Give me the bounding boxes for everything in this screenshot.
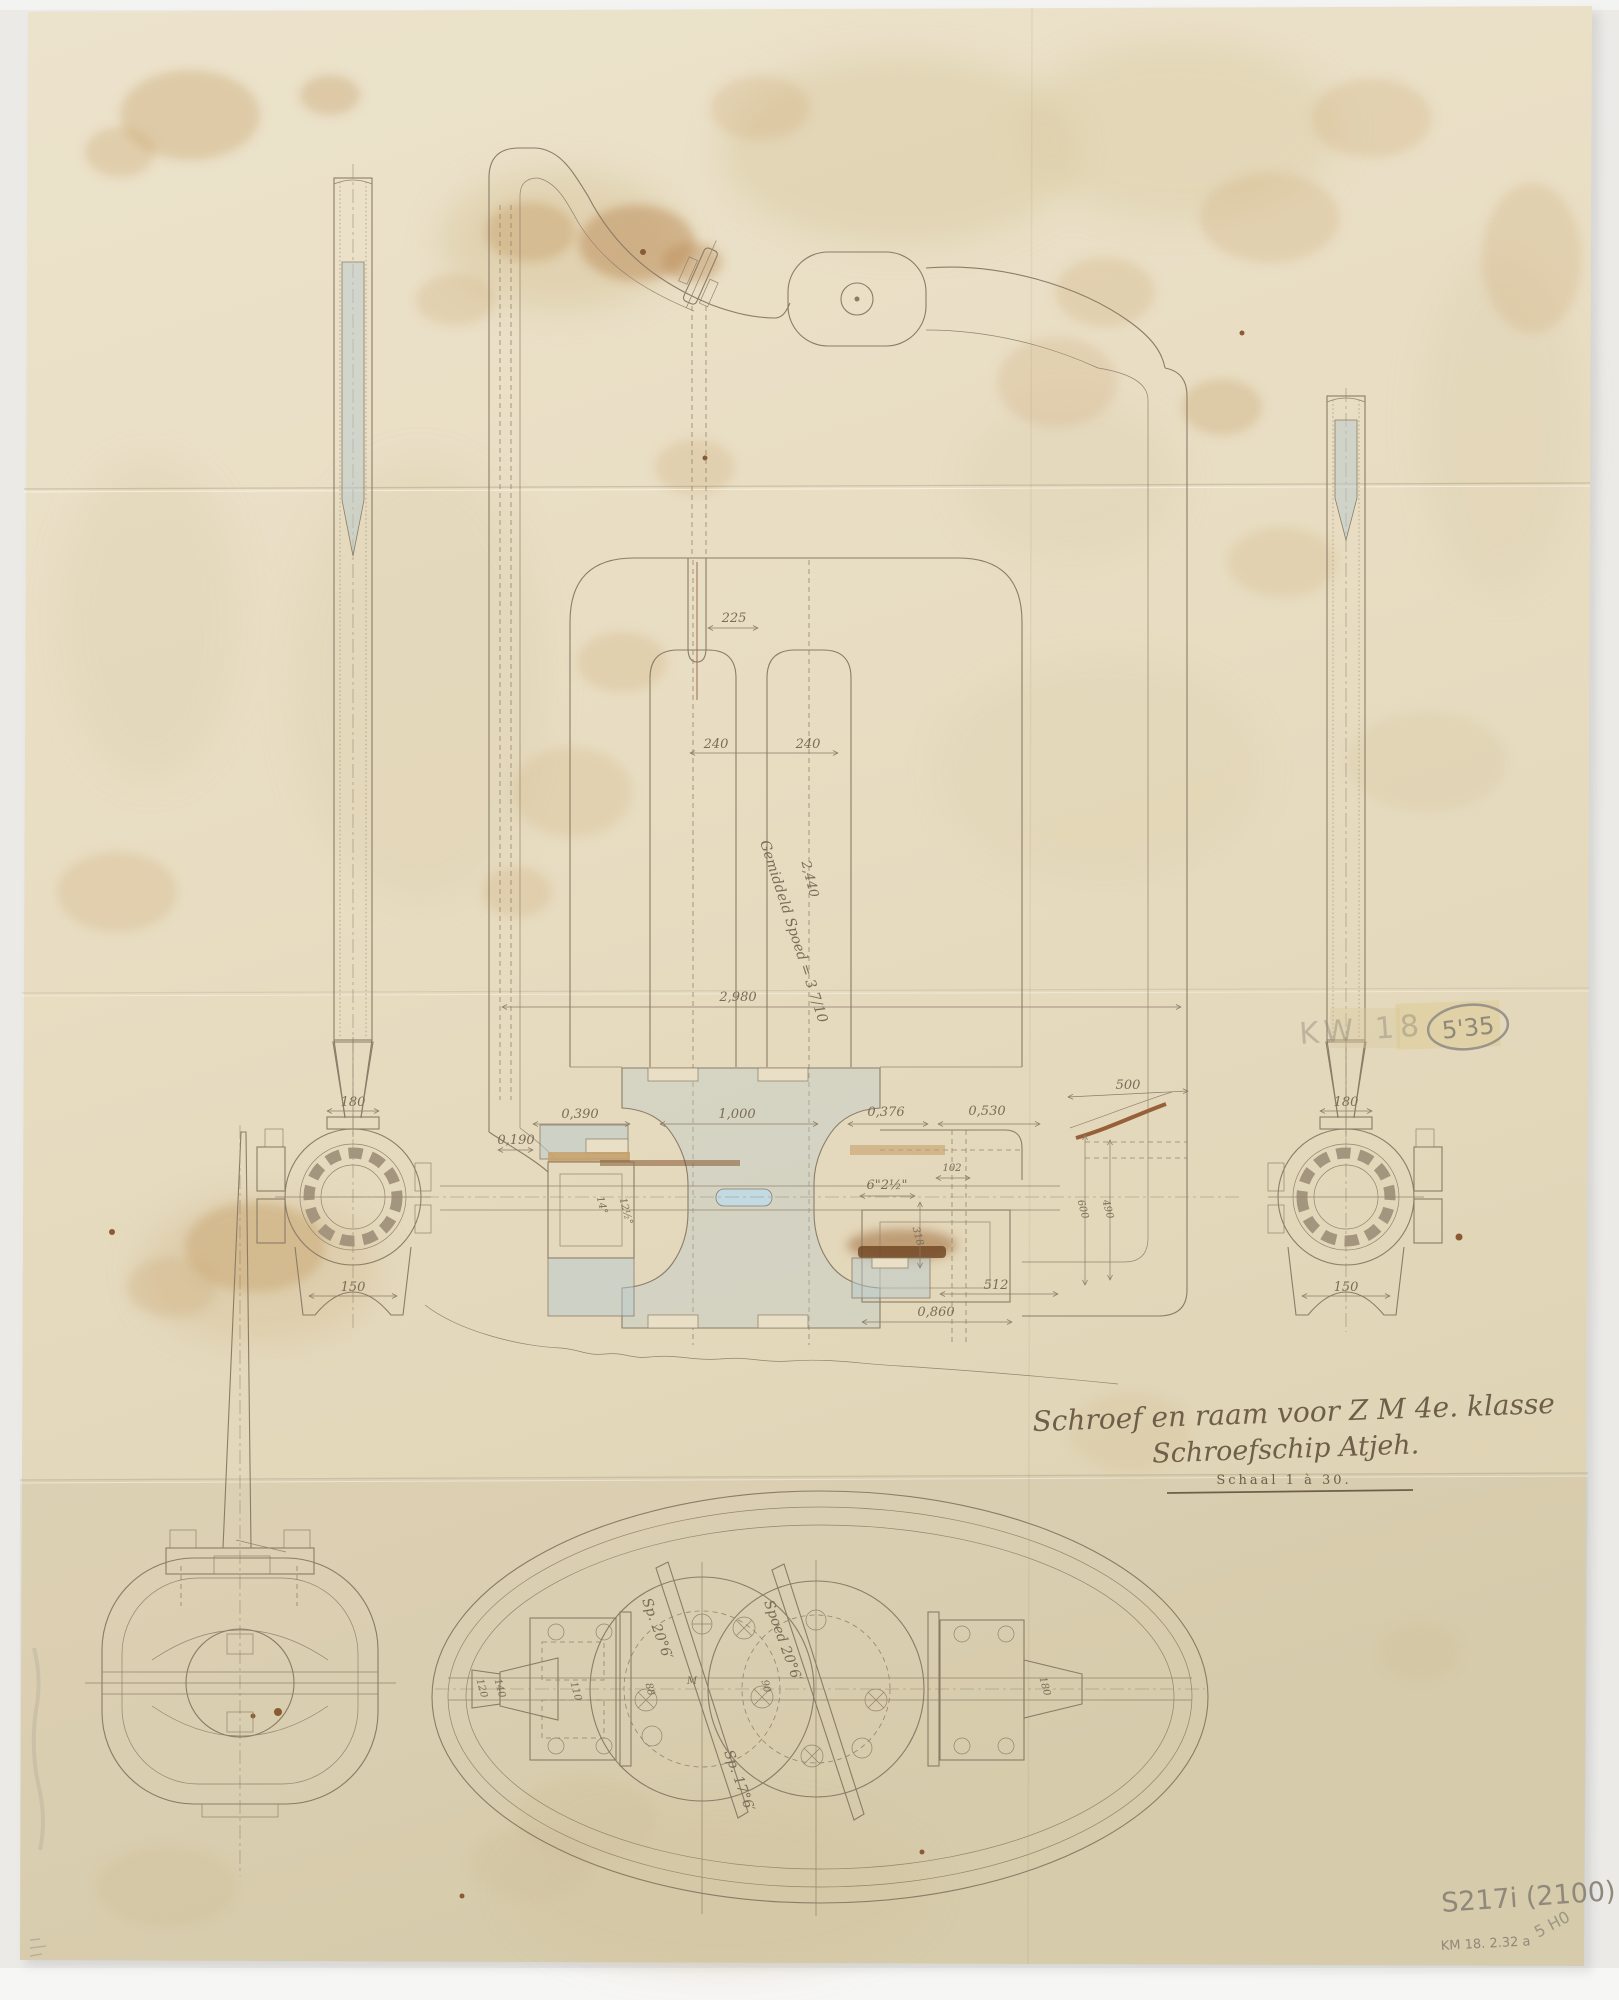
dim-0390: 0,390 [561,1107,598,1122]
dim-right-180: 180 [1334,1095,1359,1110]
dim-2980: 2,980 [718,990,756,1005]
dim-240-left: 240 [703,737,729,752]
scanned-drawing-page: 180 150 180 150 [0,0,1619,2000]
scale-note: Schaal 1 à 30. [1216,1473,1351,1488]
dim-500: 500 [1116,1078,1141,1093]
dim-slot-225: 225 [721,611,747,626]
dim-0860: 0,860 [917,1305,954,1320]
dim-0530: 0,530 [968,1104,1005,1119]
dim-512: 512 [984,1278,1009,1293]
dim-0190: 0,190 [497,1133,534,1148]
dim-0376: 0,376 [867,1105,904,1120]
dim-102: 102 [942,1163,961,1174]
dim-left-150: 150 [341,1280,366,1295]
dim-1000: 1,000 [718,1107,755,1122]
plan-mark-m: M [686,1676,698,1687]
pencil-circled-note: 5'35 [1441,1011,1496,1044]
keyway-pill [716,1189,772,1206]
drawing-canvas: 180 150 180 150 [0,0,1619,2000]
dim-240-right: 240 [795,737,821,752]
dim-shaft-note: 6"2½" [866,1178,907,1193]
dim-right-150: 150 [1334,1280,1359,1295]
blade-slot-tint [342,262,364,556]
dim-left-180: 180 [341,1095,366,1110]
